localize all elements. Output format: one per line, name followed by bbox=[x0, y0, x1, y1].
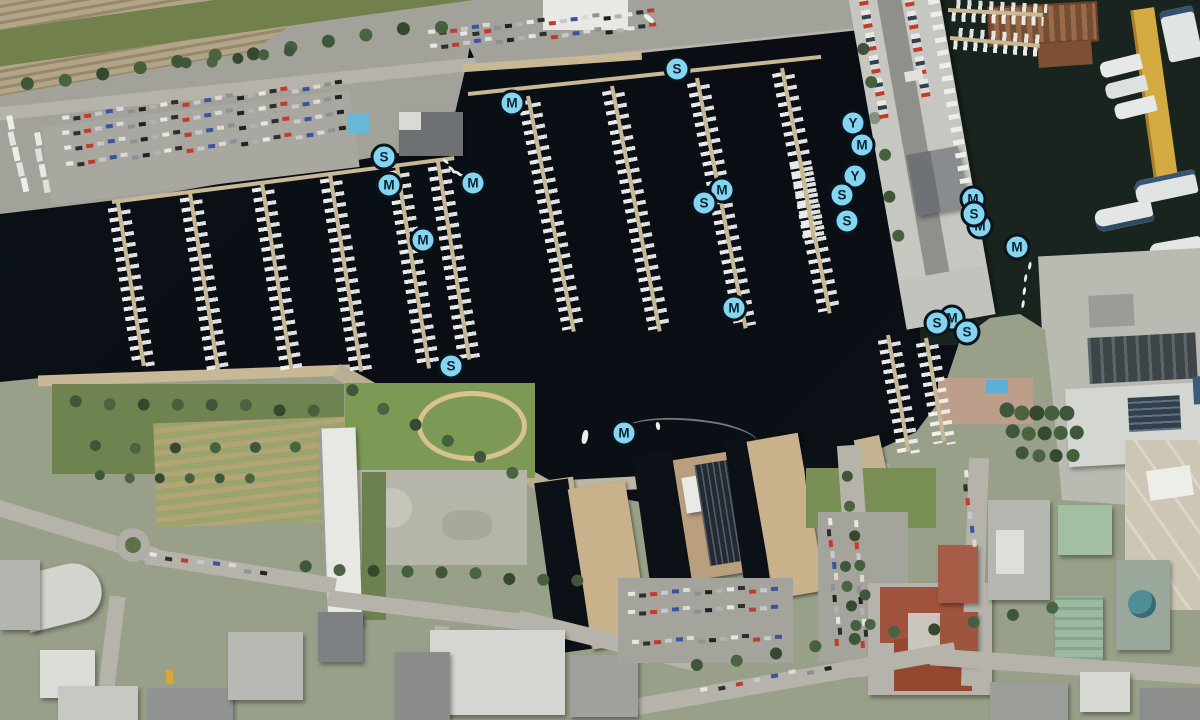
mooring-marker-M[interactable]: M bbox=[376, 172, 403, 199]
mooring-marker-S[interactable]: S bbox=[834, 208, 861, 235]
mooring-markers-layer: MMSYMYSSMSSMSMMMMMSSMSM bbox=[0, 0, 1200, 720]
mooring-marker-M[interactable]: M bbox=[721, 295, 748, 322]
mooring-marker-S[interactable]: S bbox=[438, 353, 465, 380]
marker-letter: M bbox=[383, 178, 394, 192]
mooring-marker-M[interactable]: M bbox=[460, 170, 487, 197]
marker-letter: M bbox=[856, 138, 867, 152]
marker-letter: M bbox=[1011, 240, 1022, 254]
marker-letter: S bbox=[842, 214, 851, 228]
mooring-marker-S[interactable]: S bbox=[691, 190, 718, 217]
marker-letter: S bbox=[932, 316, 941, 330]
marker-letter: S bbox=[446, 359, 455, 373]
marker-letter: S bbox=[699, 196, 708, 210]
marker-letter: S bbox=[962, 325, 971, 339]
marker-letter: M bbox=[618, 426, 629, 440]
marker-letter: M bbox=[728, 301, 739, 315]
marker-letter: M bbox=[417, 233, 428, 247]
marker-letter: S bbox=[672, 62, 681, 76]
marker-letter: M bbox=[716, 183, 727, 197]
mooring-marker-S[interactable]: S bbox=[664, 56, 691, 83]
marker-letter: Y bbox=[848, 116, 857, 130]
marker-letter: M bbox=[467, 176, 478, 190]
mooring-marker-S[interactable]: S bbox=[954, 319, 981, 346]
marker-letter: S bbox=[379, 150, 388, 164]
mooring-marker-M[interactable]: M bbox=[499, 90, 526, 117]
mooring-marker-M[interactable]: M bbox=[611, 420, 638, 447]
satellite-map[interactable]: MMSYMYSSMSSMSMMMMMSSMSM bbox=[0, 0, 1200, 720]
mooring-marker-M[interactable]: M bbox=[1004, 234, 1031, 261]
marker-letter: S bbox=[837, 188, 846, 202]
marker-letter: S bbox=[969, 207, 978, 221]
marker-letter: Y bbox=[850, 169, 859, 183]
mooring-marker-M[interactable]: M bbox=[849, 132, 876, 159]
marker-letter: M bbox=[506, 96, 517, 110]
mooring-marker-S[interactable]: S bbox=[829, 182, 856, 209]
mooring-marker-S[interactable]: S bbox=[961, 201, 988, 228]
mooring-marker-S[interactable]: S bbox=[371, 144, 398, 171]
mooring-marker-M[interactable]: M bbox=[410, 227, 437, 254]
mooring-marker-S[interactable]: S bbox=[924, 310, 951, 337]
